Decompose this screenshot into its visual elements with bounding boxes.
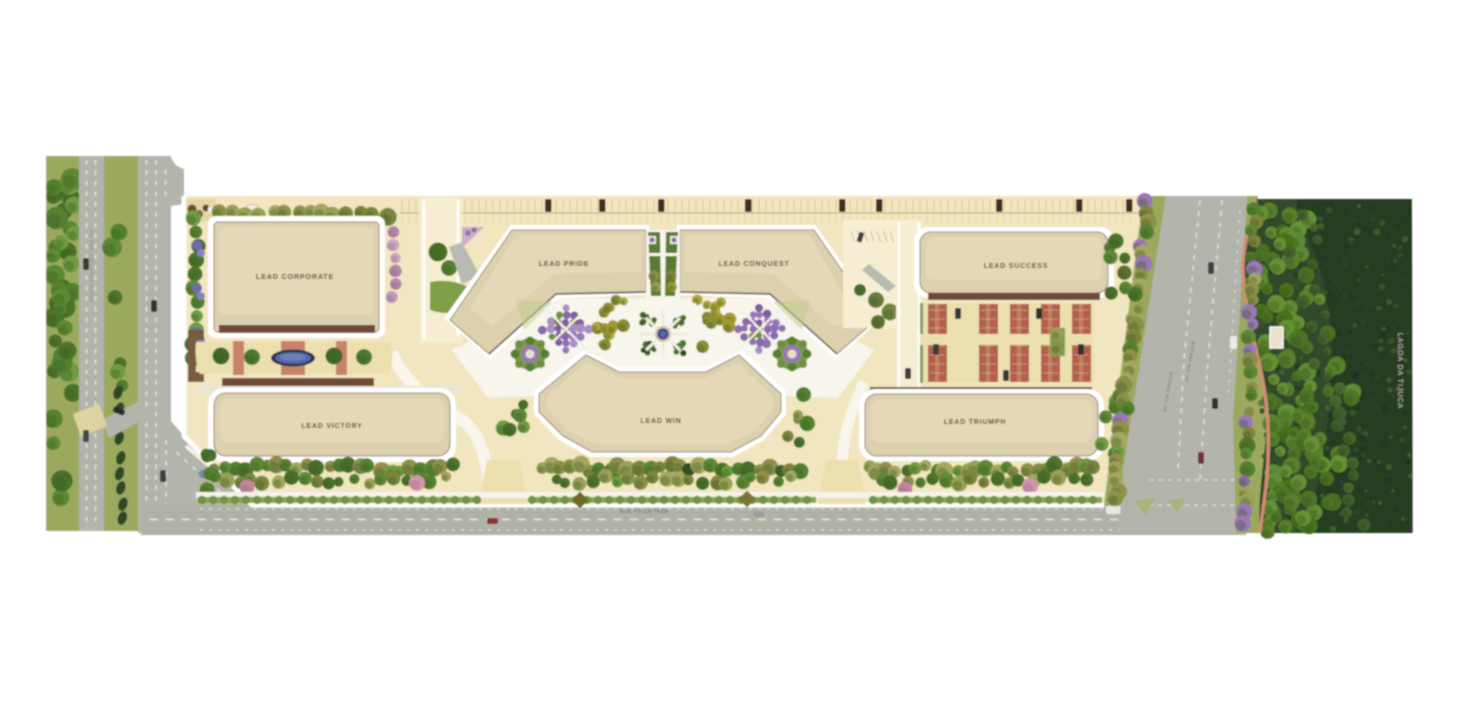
svg-text:LEAD PRIDE: LEAD PRIDE [539,261,589,268]
svg-text:LAGOA DA TIJUCA: LAGOA DA TIJUCA [1396,333,1405,409]
svg-text:AV. EMB. ABELARDO BUENO: AV. EMB. ABELARDO BUENO [89,230,94,303]
svg-text:LEAD WIN: LEAD WIN [640,418,681,425]
svg-text:LEAD SUCCESS: LEAD SUCCESS [984,263,1048,270]
svg-text:LEAD CORPORATE: LEAD CORPORATE [256,272,334,281]
svg-text:RUA PROJETADA: RUA PROJETADA [619,509,668,515]
svg-text:LEAD VICTORY: LEAD VICTORY [301,423,362,430]
svg-text:LEAD CONQUEST: LEAD CONQUEST [718,261,789,268]
svg-text:LEAD TRIUMPH: LEAD TRIUMPH [944,419,1007,426]
